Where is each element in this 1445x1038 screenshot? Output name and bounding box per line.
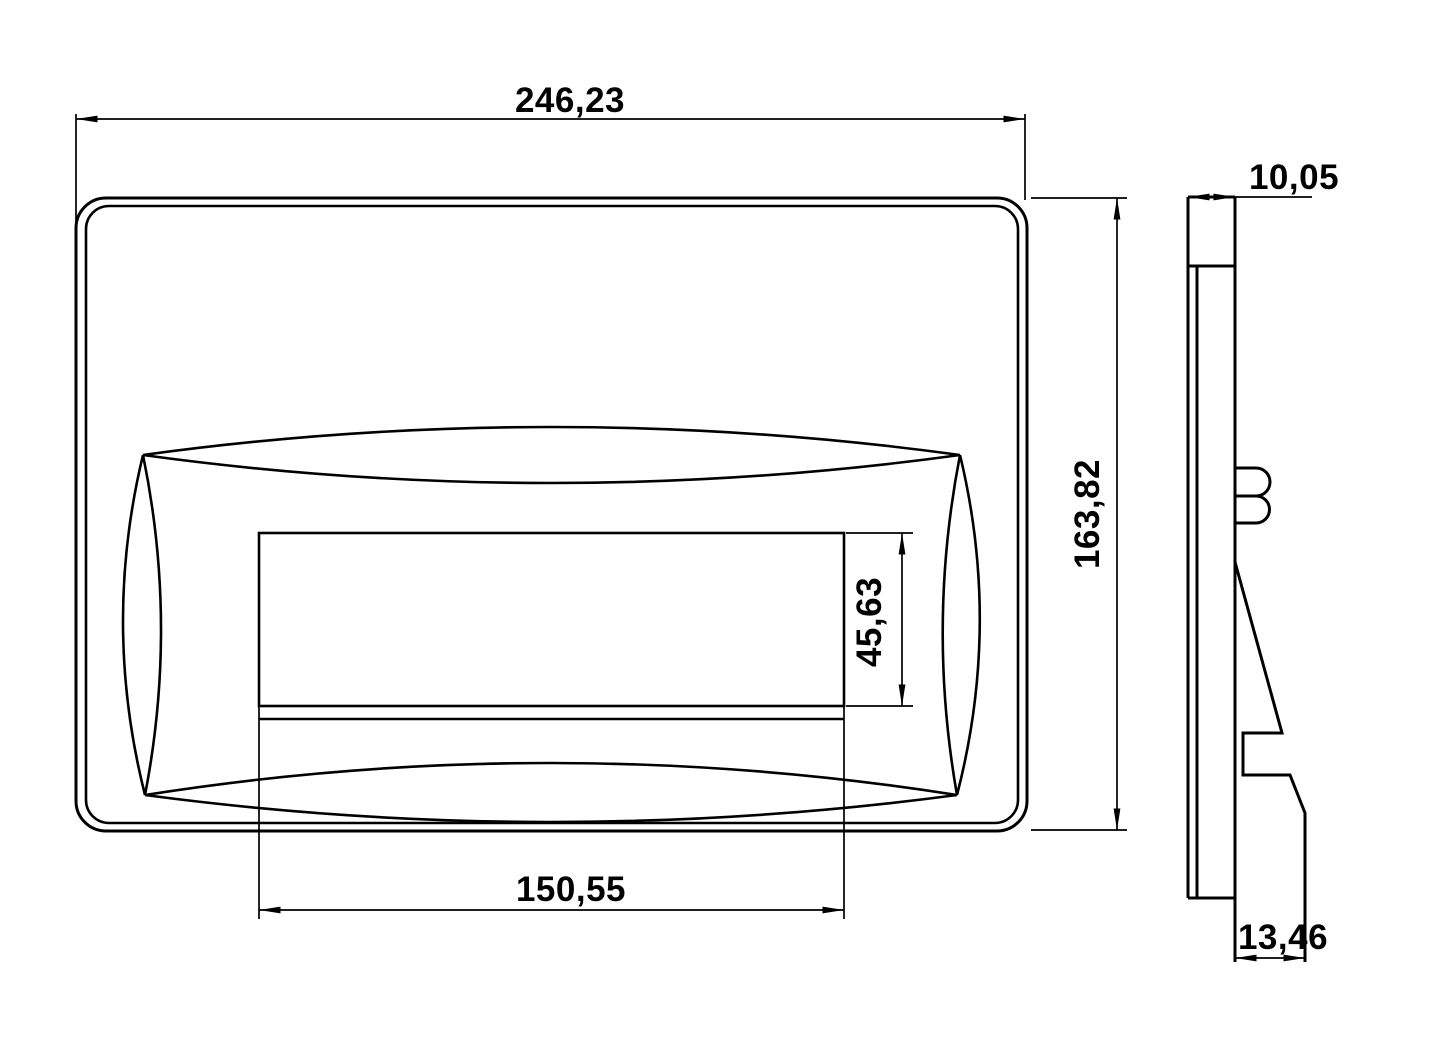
dim-bottom-depth: 13,46 bbox=[1235, 918, 1328, 958]
technical-drawing-page: 246,23 163,82 150,55 45,63 bbox=[0, 0, 1445, 1038]
pillow-left-lens bbox=[123, 455, 161, 795]
dim-button-width: 150,55 bbox=[259, 706, 844, 919]
flush-plate-technical-drawing: 246,23 163,82 150,55 45,63 bbox=[0, 0, 1445, 1038]
dim-button-height: 45,63 bbox=[846, 533, 913, 706]
overall-height-label: 163,82 bbox=[1068, 459, 1107, 569]
front-view bbox=[76, 198, 1027, 831]
bottom-depth-label: 13,46 bbox=[1238, 918, 1328, 957]
dim-overall-width: 246,23 bbox=[76, 81, 1025, 233]
side-bracket-profile bbox=[1235, 562, 1305, 962]
button-height-label: 45,63 bbox=[850, 577, 889, 667]
dim-plate-thickness: 10,05 bbox=[1188, 158, 1339, 197]
extension-lines bbox=[76, 114, 1025, 233]
side-mounting-clips bbox=[1235, 468, 1270, 523]
plate-outer-outline bbox=[76, 198, 1027, 831]
plate-inner-outline bbox=[86, 206, 1018, 823]
button-width-label: 150,55 bbox=[516, 870, 626, 909]
side-view bbox=[1188, 197, 1305, 962]
plate-thickness-label: 10,05 bbox=[1249, 158, 1339, 197]
pillow-top-lens bbox=[143, 427, 960, 483]
dim-overall-height: 163,82 bbox=[1031, 198, 1127, 830]
button-opening-outline bbox=[259, 533, 844, 706]
side-profile-body bbox=[1188, 197, 1235, 962]
pillow-bottom-lens bbox=[145, 763, 957, 822]
dimension-annotations: 246,23 163,82 150,55 45,63 bbox=[76, 81, 1339, 958]
pillow-right-lens bbox=[943, 455, 980, 795]
overall-width-label: 246,23 bbox=[515, 81, 625, 120]
